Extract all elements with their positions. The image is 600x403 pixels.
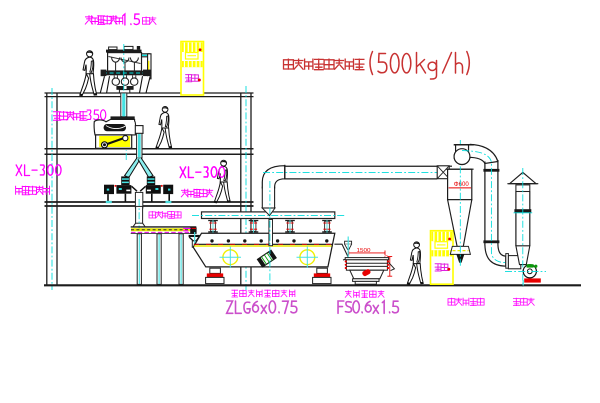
svg-text:1500: 1500 [357,248,371,254]
svg-text:Φ600: Φ600 [454,181,469,188]
